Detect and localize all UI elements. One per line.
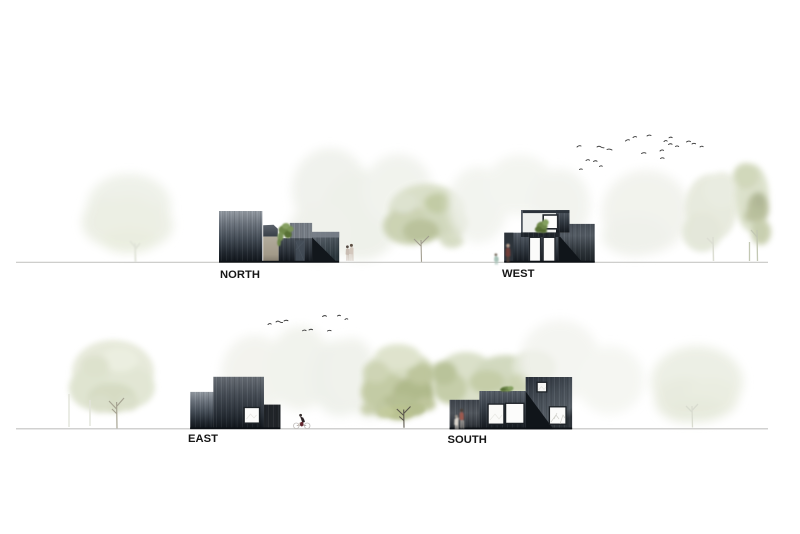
svg-text:SOUTH: SOUTH (448, 434, 487, 446)
svg-text:NORTH: NORTH (220, 269, 260, 281)
svg-text:EAST: EAST (188, 433, 218, 445)
svg-text:WEST: WEST (502, 268, 535, 280)
